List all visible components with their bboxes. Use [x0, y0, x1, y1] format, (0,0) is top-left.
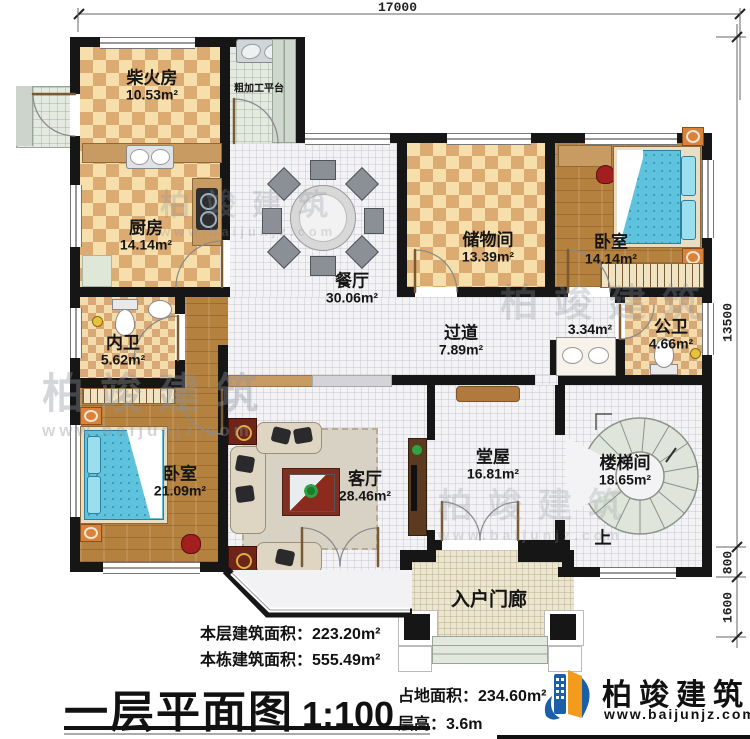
plant-icon	[412, 445, 422, 455]
dim-800: 800	[721, 541, 736, 585]
dining-chair	[262, 208, 282, 234]
door-gap-kitchen	[220, 241, 230, 287]
room-label-basin: 3.34m²	[568, 322, 612, 338]
floor-area-label: 本层建筑面积：	[200, 626, 312, 643]
brand-url: www.baijunjz.com	[604, 706, 750, 722]
total-area-label: 本栋建筑面积：	[200, 652, 312, 669]
bedroom2-pillow	[87, 436, 101, 474]
corridor-floor	[185, 297, 558, 375]
window-firewood-top	[100, 37, 195, 49]
dim-right: 13500	[721, 301, 736, 345]
dim-top: 17000	[378, 0, 417, 15]
beam-dining-living-tan	[228, 375, 314, 387]
room-label-living: 客厅 28.46m²	[339, 470, 391, 505]
basin-counter	[556, 337, 616, 376]
hall-cabinet	[456, 386, 520, 402]
plant-icon	[303, 483, 319, 499]
wall-hall-bottom-a	[427, 540, 442, 550]
floor-height-label: 层高：	[398, 716, 446, 733]
wall-hall-stair-bottom	[555, 520, 565, 550]
door-gap-bedroom1	[568, 287, 610, 297]
kitchen-stove	[196, 188, 218, 230]
wall-south-of-storage-b	[457, 287, 568, 297]
kitchen-mat	[82, 255, 112, 287]
room-label-bedroom2: 卧室 21.09m²	[154, 465, 206, 500]
brand-logo-icon	[540, 666, 598, 728]
door-gap-privbath	[175, 314, 185, 360]
bedroom2-nightstand	[80, 524, 102, 542]
floor-height-value: 3.6m	[446, 716, 482, 733]
door-gap-entry	[442, 540, 518, 550]
bedroom2-chair	[181, 534, 201, 554]
wall-hall-stair-top	[555, 385, 565, 435]
corridor-hall-opening	[535, 375, 558, 385]
window-kitchen-left	[70, 185, 82, 247]
porch-steps	[432, 636, 548, 664]
privbath-lamp	[92, 316, 103, 327]
wall-nook-right	[218, 345, 228, 388]
dining-table	[290, 185, 356, 251]
window-pubbath-right	[702, 303, 714, 355]
door-gap-pubbath	[615, 303, 625, 339]
porch-step-side	[398, 646, 432, 672]
kitchen-sink	[126, 145, 174, 169]
wall-privbath-bottom	[70, 378, 185, 388]
outdoor-platform-slab	[16, 86, 33, 146]
window-bedroom1-right	[702, 160, 714, 238]
dim-1600: 1600	[721, 583, 736, 633]
window-stair-bottom	[600, 567, 676, 579]
land-area-line: 占地面积：234.60m²	[398, 682, 547, 706]
land-area-label: 占地面积：	[398, 688, 478, 705]
sofa-cushion	[235, 485, 255, 503]
wall-dining-storage	[397, 143, 407, 297]
bedroom1-pillow	[681, 156, 696, 196]
wall-south-of-storage-a	[397, 287, 415, 297]
tv-cabinet	[408, 438, 427, 536]
wall-bedroom2-right	[218, 388, 228, 562]
room-label-stair: 楼梯间 18.65m²	[599, 454, 651, 489]
floor-area-line: 本层建筑面积：223.20m²	[200, 620, 381, 644]
brand-logo: 柏竣建筑 www.baijunjz.com	[540, 666, 750, 730]
wall-living-hall-top	[427, 385, 435, 440]
room-label-platform: 粗加工平台	[234, 83, 284, 94]
bedroom2-pillow	[87, 476, 101, 514]
sofa-cushion	[293, 427, 313, 445]
room-label-corridor: 过道 7.89m²	[439, 324, 483, 359]
living-side-table	[228, 418, 257, 445]
floor-height-line: 层高：3.6m	[398, 710, 482, 734]
window-bedroom1-top	[585, 133, 677, 145]
wall-kitchen-bottom	[70, 287, 230, 297]
privbath-toilet	[115, 309, 135, 336]
room-label-storage: 储物间 13.39m²	[462, 231, 514, 266]
wall-corridor-south-b	[558, 375, 712, 385]
room-label-privbath: 内卫 5.62m²	[101, 334, 145, 369]
dining-chair	[310, 160, 336, 180]
bedroom1-nightstand	[682, 127, 704, 146]
window-bedroom2-bottom	[103, 562, 200, 574]
bedroom2-nightstand	[80, 407, 102, 425]
bedroom1-desk	[558, 145, 612, 167]
title-underline-thick	[64, 726, 430, 730]
room-label-kitchen: 厨房 14.14m²	[120, 219, 172, 254]
wall-storage-bedroom1	[545, 143, 555, 297]
living-side-table	[228, 546, 257, 573]
bottom-bar	[497, 735, 750, 739]
window-dining-top	[305, 133, 390, 145]
room-label-hall: 堂屋 16.81m²	[467, 448, 519, 483]
room-label-dining: 餐厅 30.06m²	[326, 272, 378, 307]
total-area-line: 本栋建筑面积：555.49m²	[200, 646, 381, 670]
bedroom1-sheet	[617, 150, 643, 242]
tv-icon	[411, 465, 417, 511]
privbath-sink	[148, 300, 172, 319]
porch-column	[404, 614, 430, 640]
room-label-pubbath: 公卫 4.66m²	[649, 318, 693, 353]
beam-dining-living-gray	[312, 375, 392, 387]
wall-south-of-bedroom1	[610, 287, 712, 297]
wall-porch-jamb-left-v	[400, 550, 412, 576]
living-coffee-table	[282, 468, 340, 516]
floor-plan-canvas: 17000 13500 800 1600 柴火房 10.53m² 粗加工平台 厨…	[0, 0, 750, 739]
room-label-porch: 入户门廊	[451, 589, 527, 610]
wall-corridor-south-a	[390, 375, 535, 385]
room-label-firewood: 柴火房 10.53m²	[126, 69, 178, 104]
stair-up-label: 上	[595, 528, 612, 547]
bedroom2-wardrobe	[82, 388, 176, 404]
door-gap-exterior	[70, 94, 80, 136]
window-privbath-left	[70, 308, 82, 358]
storage-floor	[407, 143, 545, 287]
total-area-value: 555.49m²	[312, 652, 381, 669]
land-area-value: 234.60m²	[478, 688, 547, 705]
porch-column	[550, 614, 576, 640]
dining-chair	[364, 208, 384, 234]
bedroom1-pillow	[681, 200, 696, 240]
window-storage-top	[447, 133, 531, 145]
door-gap-storage	[415, 287, 457, 297]
wall-basin-pubbath-b	[615, 339, 625, 375]
floor-area-value: 223.20m²	[312, 626, 381, 643]
wall-platform-right	[295, 37, 305, 143]
room-label-bedroom1: 卧室 14.14m²	[585, 233, 637, 268]
title-underline-thin	[64, 733, 430, 735]
sofa-cushion	[235, 455, 256, 474]
